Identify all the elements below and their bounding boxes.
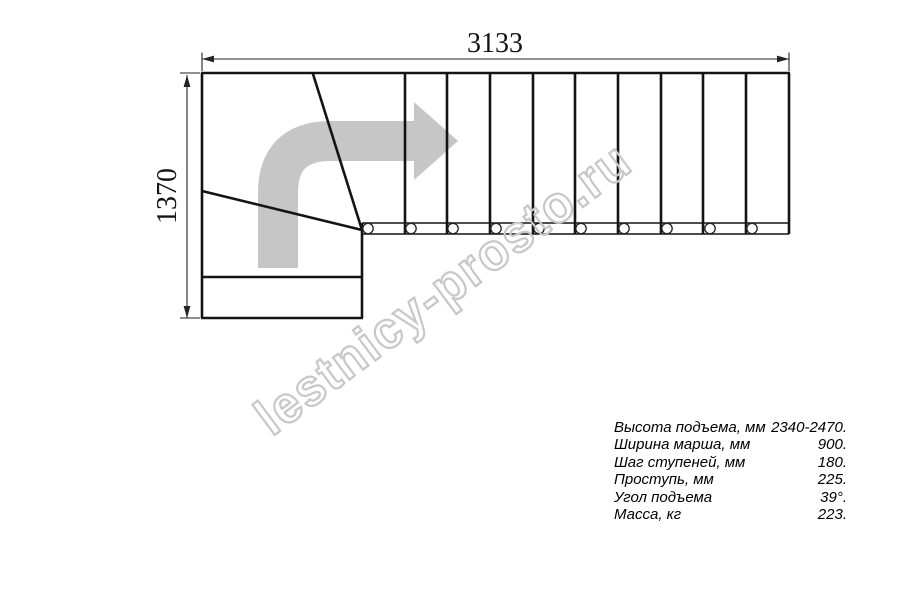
spec-label: Ширина марша, мм xyxy=(614,436,750,453)
spec-row: Масса, кг 223. xyxy=(614,506,847,523)
spec-label: Масса, кг xyxy=(614,506,681,523)
spec-value: 900. xyxy=(818,436,847,453)
spec-row: Шаг ступеней, мм 180. xyxy=(614,454,847,471)
baluster-circle xyxy=(747,223,757,233)
direction-arrow-icon xyxy=(278,102,458,268)
height-dimension: 1370 xyxy=(152,73,200,318)
spec-value: 2340-2470. xyxy=(771,419,847,436)
spec-row: Угол подъема 39°. xyxy=(614,489,847,506)
direction-arrow-head xyxy=(414,102,458,180)
staircase-drawing-page: 3133 1370 lestnicy-prosto.ru Высота подъ… xyxy=(0,0,900,600)
spec-label: Проступь, мм xyxy=(614,471,714,488)
spec-row: Проступь, мм 225. xyxy=(614,471,847,488)
spec-label: Шаг ступеней, мм xyxy=(614,454,745,471)
baluster-circle xyxy=(705,223,715,233)
width-dimension: 3133 xyxy=(202,28,789,71)
dimension-arrow-right-icon xyxy=(777,56,789,63)
baluster-circle xyxy=(662,223,672,233)
spec-value: 225. xyxy=(818,471,847,488)
spec-label: Угол подъема xyxy=(614,489,712,506)
direction-arrow-shaft xyxy=(278,141,414,268)
spec-row: Высота подъема, мм 2340-2470. xyxy=(614,419,847,436)
baluster-circle xyxy=(363,223,373,233)
spec-value: 39°. xyxy=(820,489,847,506)
spec-value: 223. xyxy=(818,506,847,523)
baluster-circle xyxy=(406,223,416,233)
dimension-arrow-up-icon xyxy=(184,75,191,87)
baluster-circle xyxy=(448,223,458,233)
watermark-text: lestnicy-prosto.ru xyxy=(245,131,643,446)
dimension-arrow-down-icon xyxy=(184,306,191,318)
baluster-circle xyxy=(619,223,629,233)
spec-value: 180. xyxy=(818,454,847,471)
spec-table: Высота подъема, мм 2340-2470. Ширина мар… xyxy=(614,419,847,523)
height-dimension-label: 1370 xyxy=(152,168,183,224)
spec-label: Высота подъема, мм xyxy=(614,419,766,436)
dimension-arrow-left-icon xyxy=(202,56,214,63)
width-dimension-label: 3133 xyxy=(467,28,523,59)
spec-row: Ширина марша, мм 900. xyxy=(614,436,847,453)
